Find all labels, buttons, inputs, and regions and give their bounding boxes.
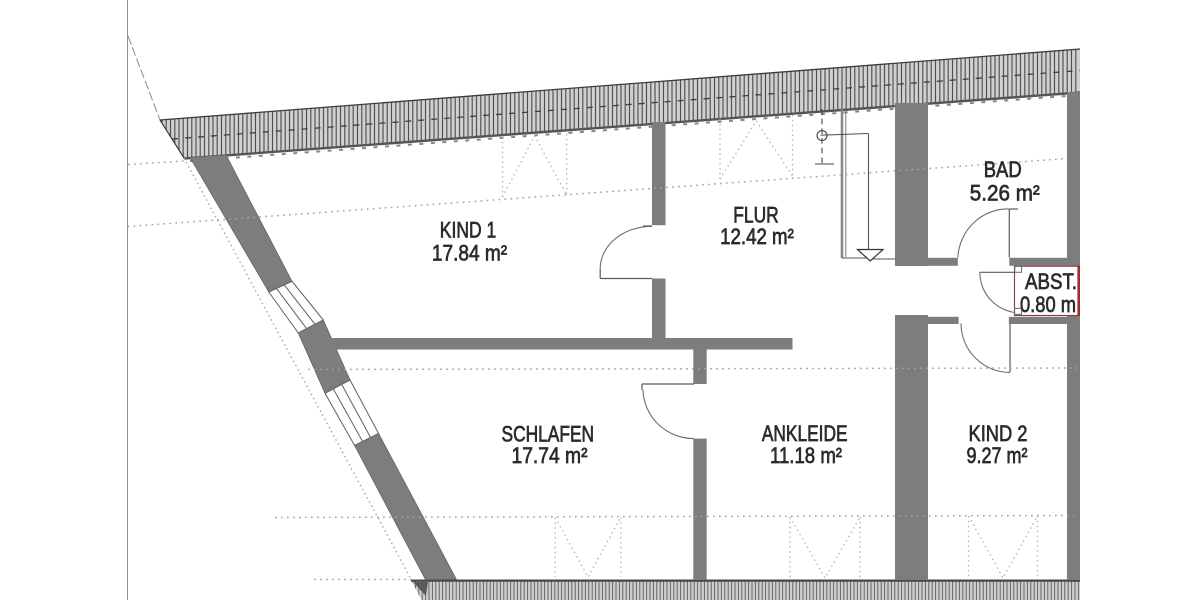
svg-text:17.84 m²: 17.84 m²: [432, 240, 507, 265]
svg-text:BAD: BAD: [984, 157, 1022, 182]
svg-text:12.42 m²: 12.42 m²: [720, 224, 794, 249]
svg-text:5.26 m²: 5.26 m²: [970, 181, 1040, 206]
svg-text:9.27 m²: 9.27 m²: [967, 443, 1028, 468]
svg-text:KIND 1: KIND 1: [440, 218, 496, 243]
svg-text:ABST.: ABST.: [1025, 269, 1077, 294]
svg-text:17.74 m²: 17.74 m²: [512, 443, 588, 468]
svg-text:0.80 m: 0.80 m: [1020, 292, 1076, 317]
svg-text:11.18 m²: 11.18 m²: [770, 443, 842, 468]
